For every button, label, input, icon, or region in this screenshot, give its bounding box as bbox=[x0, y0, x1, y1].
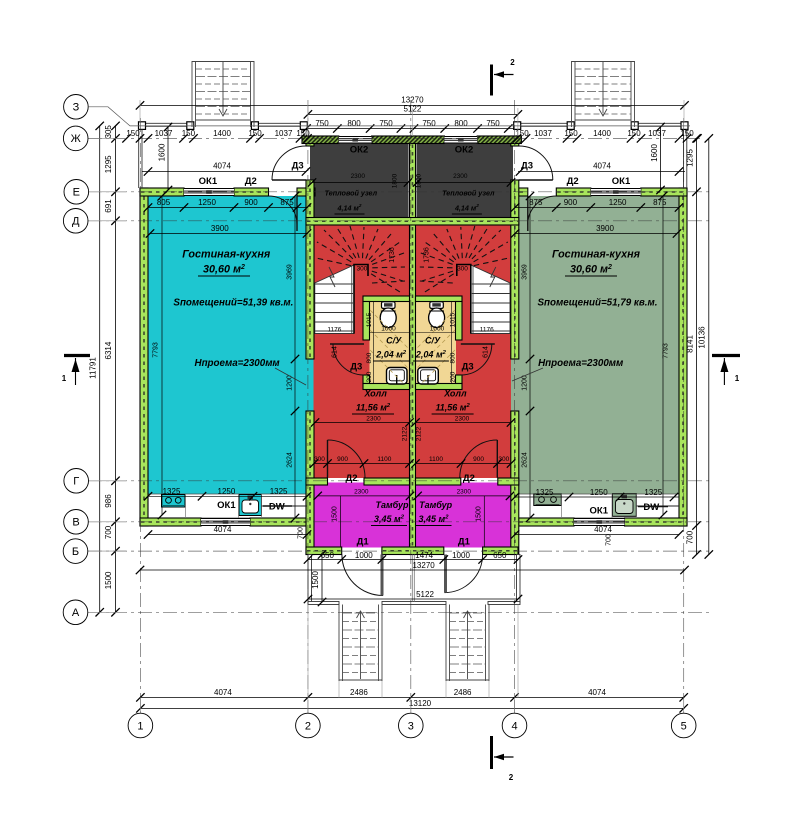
svg-text:Д2: Д2 bbox=[245, 176, 257, 187]
svg-text:1176: 1176 bbox=[480, 327, 494, 334]
svg-text:150: 150 bbox=[182, 129, 196, 138]
svg-text:900: 900 bbox=[337, 456, 348, 463]
svg-text:ОК1: ОК1 bbox=[217, 500, 236, 511]
svg-text:700: 700 bbox=[104, 525, 113, 539]
svg-text:А: А bbox=[72, 607, 80, 619]
svg-text:4,14 м2: 4,14 м2 bbox=[337, 203, 362, 213]
svg-text:DW: DW bbox=[643, 502, 659, 513]
svg-text:Тамбур: Тамбур bbox=[419, 500, 453, 510]
svg-text:11,56 м2: 11,56 м2 bbox=[435, 403, 470, 413]
svg-text:4074: 4074 bbox=[213, 162, 231, 171]
svg-text:800: 800 bbox=[454, 119, 468, 128]
svg-text:4074: 4074 bbox=[214, 525, 232, 534]
svg-text:1325: 1325 bbox=[270, 487, 288, 496]
svg-text:1015: 1015 bbox=[366, 312, 373, 327]
svg-text:З: З bbox=[73, 102, 80, 114]
svg-text:650: 650 bbox=[321, 551, 335, 560]
svg-text:1500: 1500 bbox=[104, 571, 113, 589]
svg-text:1250: 1250 bbox=[590, 488, 608, 497]
svg-text:Д3: Д3 bbox=[350, 362, 362, 373]
svg-text:1400: 1400 bbox=[593, 129, 611, 138]
svg-text:691: 691 bbox=[104, 199, 113, 213]
svg-text:Д2: Д2 bbox=[345, 473, 357, 484]
svg-text:2624: 2624 bbox=[521, 452, 528, 468]
svg-text:Д2: Д2 bbox=[567, 176, 579, 187]
svg-text:1100: 1100 bbox=[429, 456, 443, 463]
svg-text:7793: 7793 bbox=[153, 342, 160, 358]
svg-text:Sпомещений=51,39 кв.м.: Sпомещений=51,39 кв.м. bbox=[173, 298, 293, 309]
svg-text:1: 1 bbox=[137, 720, 143, 732]
svg-text:2486: 2486 bbox=[454, 688, 472, 697]
svg-text:700: 700 bbox=[606, 534, 613, 546]
svg-text:1: 1 bbox=[735, 374, 740, 383]
svg-text:1474: 1474 bbox=[415, 551, 433, 560]
svg-text:2624: 2624 bbox=[287, 452, 294, 468]
svg-text:875: 875 bbox=[529, 198, 543, 207]
svg-text:Д1: Д1 bbox=[357, 537, 370, 548]
svg-text:1400: 1400 bbox=[213, 129, 231, 138]
svg-text:900: 900 bbox=[473, 456, 484, 463]
svg-text:1500: 1500 bbox=[475, 506, 482, 522]
svg-text:Холл: Холл bbox=[443, 389, 467, 399]
svg-text:750: 750 bbox=[486, 119, 500, 128]
svg-text:3,45 м2: 3,45 м2 bbox=[419, 514, 450, 524]
svg-text:1200: 1200 bbox=[521, 375, 528, 391]
svg-text:5: 5 bbox=[681, 720, 687, 732]
svg-text:Г: Г bbox=[73, 476, 79, 488]
svg-text:С/У: С/У bbox=[386, 336, 402, 346]
svg-text:В: В bbox=[72, 517, 79, 529]
svg-text:700: 700 bbox=[686, 530, 695, 544]
svg-text:1325: 1325 bbox=[644, 488, 662, 497]
svg-text:30,60 м2: 30,60 м2 bbox=[570, 264, 612, 276]
svg-text:900: 900 bbox=[244, 198, 258, 207]
svg-text:1250: 1250 bbox=[198, 198, 216, 207]
svg-text:4: 4 bbox=[511, 720, 517, 732]
svg-text:1736: 1736 bbox=[389, 247, 396, 263]
svg-text:986: 986 bbox=[104, 494, 113, 508]
svg-text:Sпомещений=51,79 кв.м.: Sпомещений=51,79 кв.м. bbox=[538, 298, 658, 309]
svg-text:3900: 3900 bbox=[596, 224, 614, 233]
svg-text:4,14 м2: 4,14 м2 bbox=[454, 203, 479, 213]
svg-text:750: 750 bbox=[379, 119, 393, 128]
svg-text:Тамбур: Тамбур bbox=[375, 500, 409, 510]
svg-text:Гостиная-кухня: Гостиная-кухня bbox=[182, 249, 271, 261]
svg-text:1295: 1295 bbox=[686, 149, 695, 167]
svg-text:3900: 3900 bbox=[211, 224, 229, 233]
svg-text:30,60 м2: 30,60 м2 bbox=[203, 264, 245, 276]
svg-text:2300: 2300 bbox=[354, 489, 369, 496]
svg-text:614: 614 bbox=[483, 346, 490, 358]
svg-text:2122: 2122 bbox=[415, 426, 422, 441]
svg-text:750: 750 bbox=[422, 119, 436, 128]
svg-text:2: 2 bbox=[510, 58, 515, 67]
svg-text:1100: 1100 bbox=[377, 456, 391, 463]
svg-text:700: 700 bbox=[298, 527, 305, 539]
svg-text:4074: 4074 bbox=[594, 525, 612, 534]
svg-text:1015: 1015 bbox=[450, 312, 457, 327]
svg-text:2486: 2486 bbox=[350, 688, 368, 697]
svg-text:1250: 1250 bbox=[609, 198, 627, 207]
svg-text:1325: 1325 bbox=[536, 488, 554, 497]
svg-text:Гостиная-кухня: Гостиная-кухня bbox=[552, 249, 641, 261]
svg-text:1325: 1325 bbox=[163, 487, 181, 496]
svg-text:300: 300 bbox=[314, 456, 325, 463]
svg-text:300: 300 bbox=[357, 266, 368, 273]
svg-text:4074: 4074 bbox=[593, 162, 611, 171]
svg-text:5122: 5122 bbox=[416, 590, 434, 599]
svg-text:1: 1 bbox=[62, 374, 67, 383]
svg-text:2,04 м2: 2,04 м2 bbox=[375, 350, 407, 360]
svg-text:650: 650 bbox=[493, 551, 507, 560]
svg-text:150: 150 bbox=[680, 129, 694, 138]
svg-text:2300: 2300 bbox=[453, 173, 468, 180]
svg-text:1250: 1250 bbox=[218, 487, 236, 496]
svg-text:Д3: Д3 bbox=[462, 362, 474, 373]
svg-text:1000: 1000 bbox=[381, 326, 396, 333]
svg-text:1295: 1295 bbox=[104, 155, 113, 173]
svg-text:4074: 4074 bbox=[214, 688, 232, 697]
svg-text:Нпроема=2300мм: Нпроема=2300мм bbox=[538, 358, 624, 369]
svg-text:Д2: Д2 bbox=[463, 473, 475, 484]
svg-text:1600: 1600 bbox=[650, 144, 659, 162]
svg-text:150: 150 bbox=[627, 129, 641, 138]
svg-text:DW: DW bbox=[269, 502, 285, 513]
svg-text:Б: Б bbox=[72, 546, 79, 558]
svg-text:7793: 7793 bbox=[663, 343, 670, 359]
svg-text:Д: Д bbox=[72, 216, 80, 228]
svg-text:200: 200 bbox=[450, 371, 457, 382]
svg-text:Нпроема=2300мм: Нпроема=2300мм bbox=[195, 358, 281, 369]
svg-text:3969: 3969 bbox=[521, 264, 528, 280]
svg-text:2300: 2300 bbox=[455, 416, 470, 423]
svg-text:2300: 2300 bbox=[457, 489, 472, 496]
svg-text:2300: 2300 bbox=[366, 416, 381, 423]
svg-text:2300: 2300 bbox=[351, 173, 366, 180]
svg-text:Д1: Д1 bbox=[458, 537, 471, 548]
svg-text:614: 614 bbox=[332, 346, 339, 358]
svg-text:800: 800 bbox=[450, 352, 457, 363]
svg-text:1800: 1800 bbox=[392, 173, 399, 188]
svg-text:150: 150 bbox=[564, 129, 578, 138]
svg-text:900: 900 bbox=[564, 198, 578, 207]
svg-text:ОК1: ОК1 bbox=[612, 176, 631, 187]
svg-text:Тепловой узел: Тепловой узел bbox=[325, 189, 378, 198]
svg-text:Д3: Д3 bbox=[521, 161, 533, 172]
svg-text:6314: 6314 bbox=[104, 341, 113, 359]
svg-text:13270: 13270 bbox=[412, 561, 435, 570]
svg-text:750: 750 bbox=[315, 119, 329, 128]
svg-text:13270: 13270 bbox=[401, 96, 424, 105]
svg-text:2122: 2122 bbox=[401, 426, 408, 441]
svg-text:800: 800 bbox=[366, 352, 373, 363]
svg-text:Д3: Д3 bbox=[292, 161, 304, 172]
svg-text:8141: 8141 bbox=[686, 335, 695, 353]
svg-text:1037: 1037 bbox=[275, 129, 293, 138]
svg-text:Е: Е bbox=[73, 187, 80, 199]
svg-text:800: 800 bbox=[347, 119, 361, 128]
svg-text:3969: 3969 bbox=[287, 264, 294, 280]
svg-text:ОК1: ОК1 bbox=[199, 176, 218, 187]
svg-text:1000: 1000 bbox=[452, 551, 470, 560]
svg-text:1176: 1176 bbox=[327, 327, 341, 334]
svg-text:2: 2 bbox=[509, 773, 514, 782]
svg-text:3: 3 bbox=[408, 720, 414, 732]
svg-text:3,45 м2: 3,45 м2 bbox=[374, 514, 405, 524]
svg-text:1500: 1500 bbox=[311, 571, 320, 589]
svg-text:1736: 1736 bbox=[424, 247, 431, 263]
svg-text:13120: 13120 bbox=[409, 699, 432, 708]
svg-text:10136: 10136 bbox=[698, 326, 707, 349]
svg-text:Холл: Холл bbox=[364, 389, 388, 399]
svg-text:ОК2: ОК2 bbox=[455, 145, 473, 156]
svg-text:11,56 м2: 11,56 м2 bbox=[356, 403, 391, 413]
svg-text:2,04 м2: 2,04 м2 bbox=[415, 350, 447, 360]
svg-text:11791: 11791 bbox=[89, 357, 98, 379]
svg-text:ОК2: ОК2 bbox=[350, 145, 368, 156]
svg-text:ОК1: ОК1 bbox=[590, 506, 609, 517]
svg-text:305: 305 bbox=[104, 125, 113, 139]
svg-text:1500: 1500 bbox=[332, 506, 339, 522]
svg-text:2: 2 bbox=[305, 720, 311, 732]
svg-text:1600: 1600 bbox=[158, 143, 167, 161]
svg-text:200: 200 bbox=[366, 371, 373, 382]
svg-text:Тепловой узел: Тепловой узел bbox=[442, 189, 495, 198]
svg-text:4074: 4074 bbox=[588, 688, 606, 697]
svg-text:1000: 1000 bbox=[430, 326, 445, 333]
svg-text:Ж: Ж bbox=[71, 133, 81, 145]
svg-text:С/У: С/У bbox=[425, 336, 441, 346]
svg-text:1000: 1000 bbox=[355, 551, 373, 560]
svg-text:300: 300 bbox=[457, 266, 468, 273]
svg-text:1800: 1800 bbox=[416, 173, 423, 188]
svg-text:1037: 1037 bbox=[534, 129, 552, 138]
svg-text:300: 300 bbox=[498, 456, 509, 463]
